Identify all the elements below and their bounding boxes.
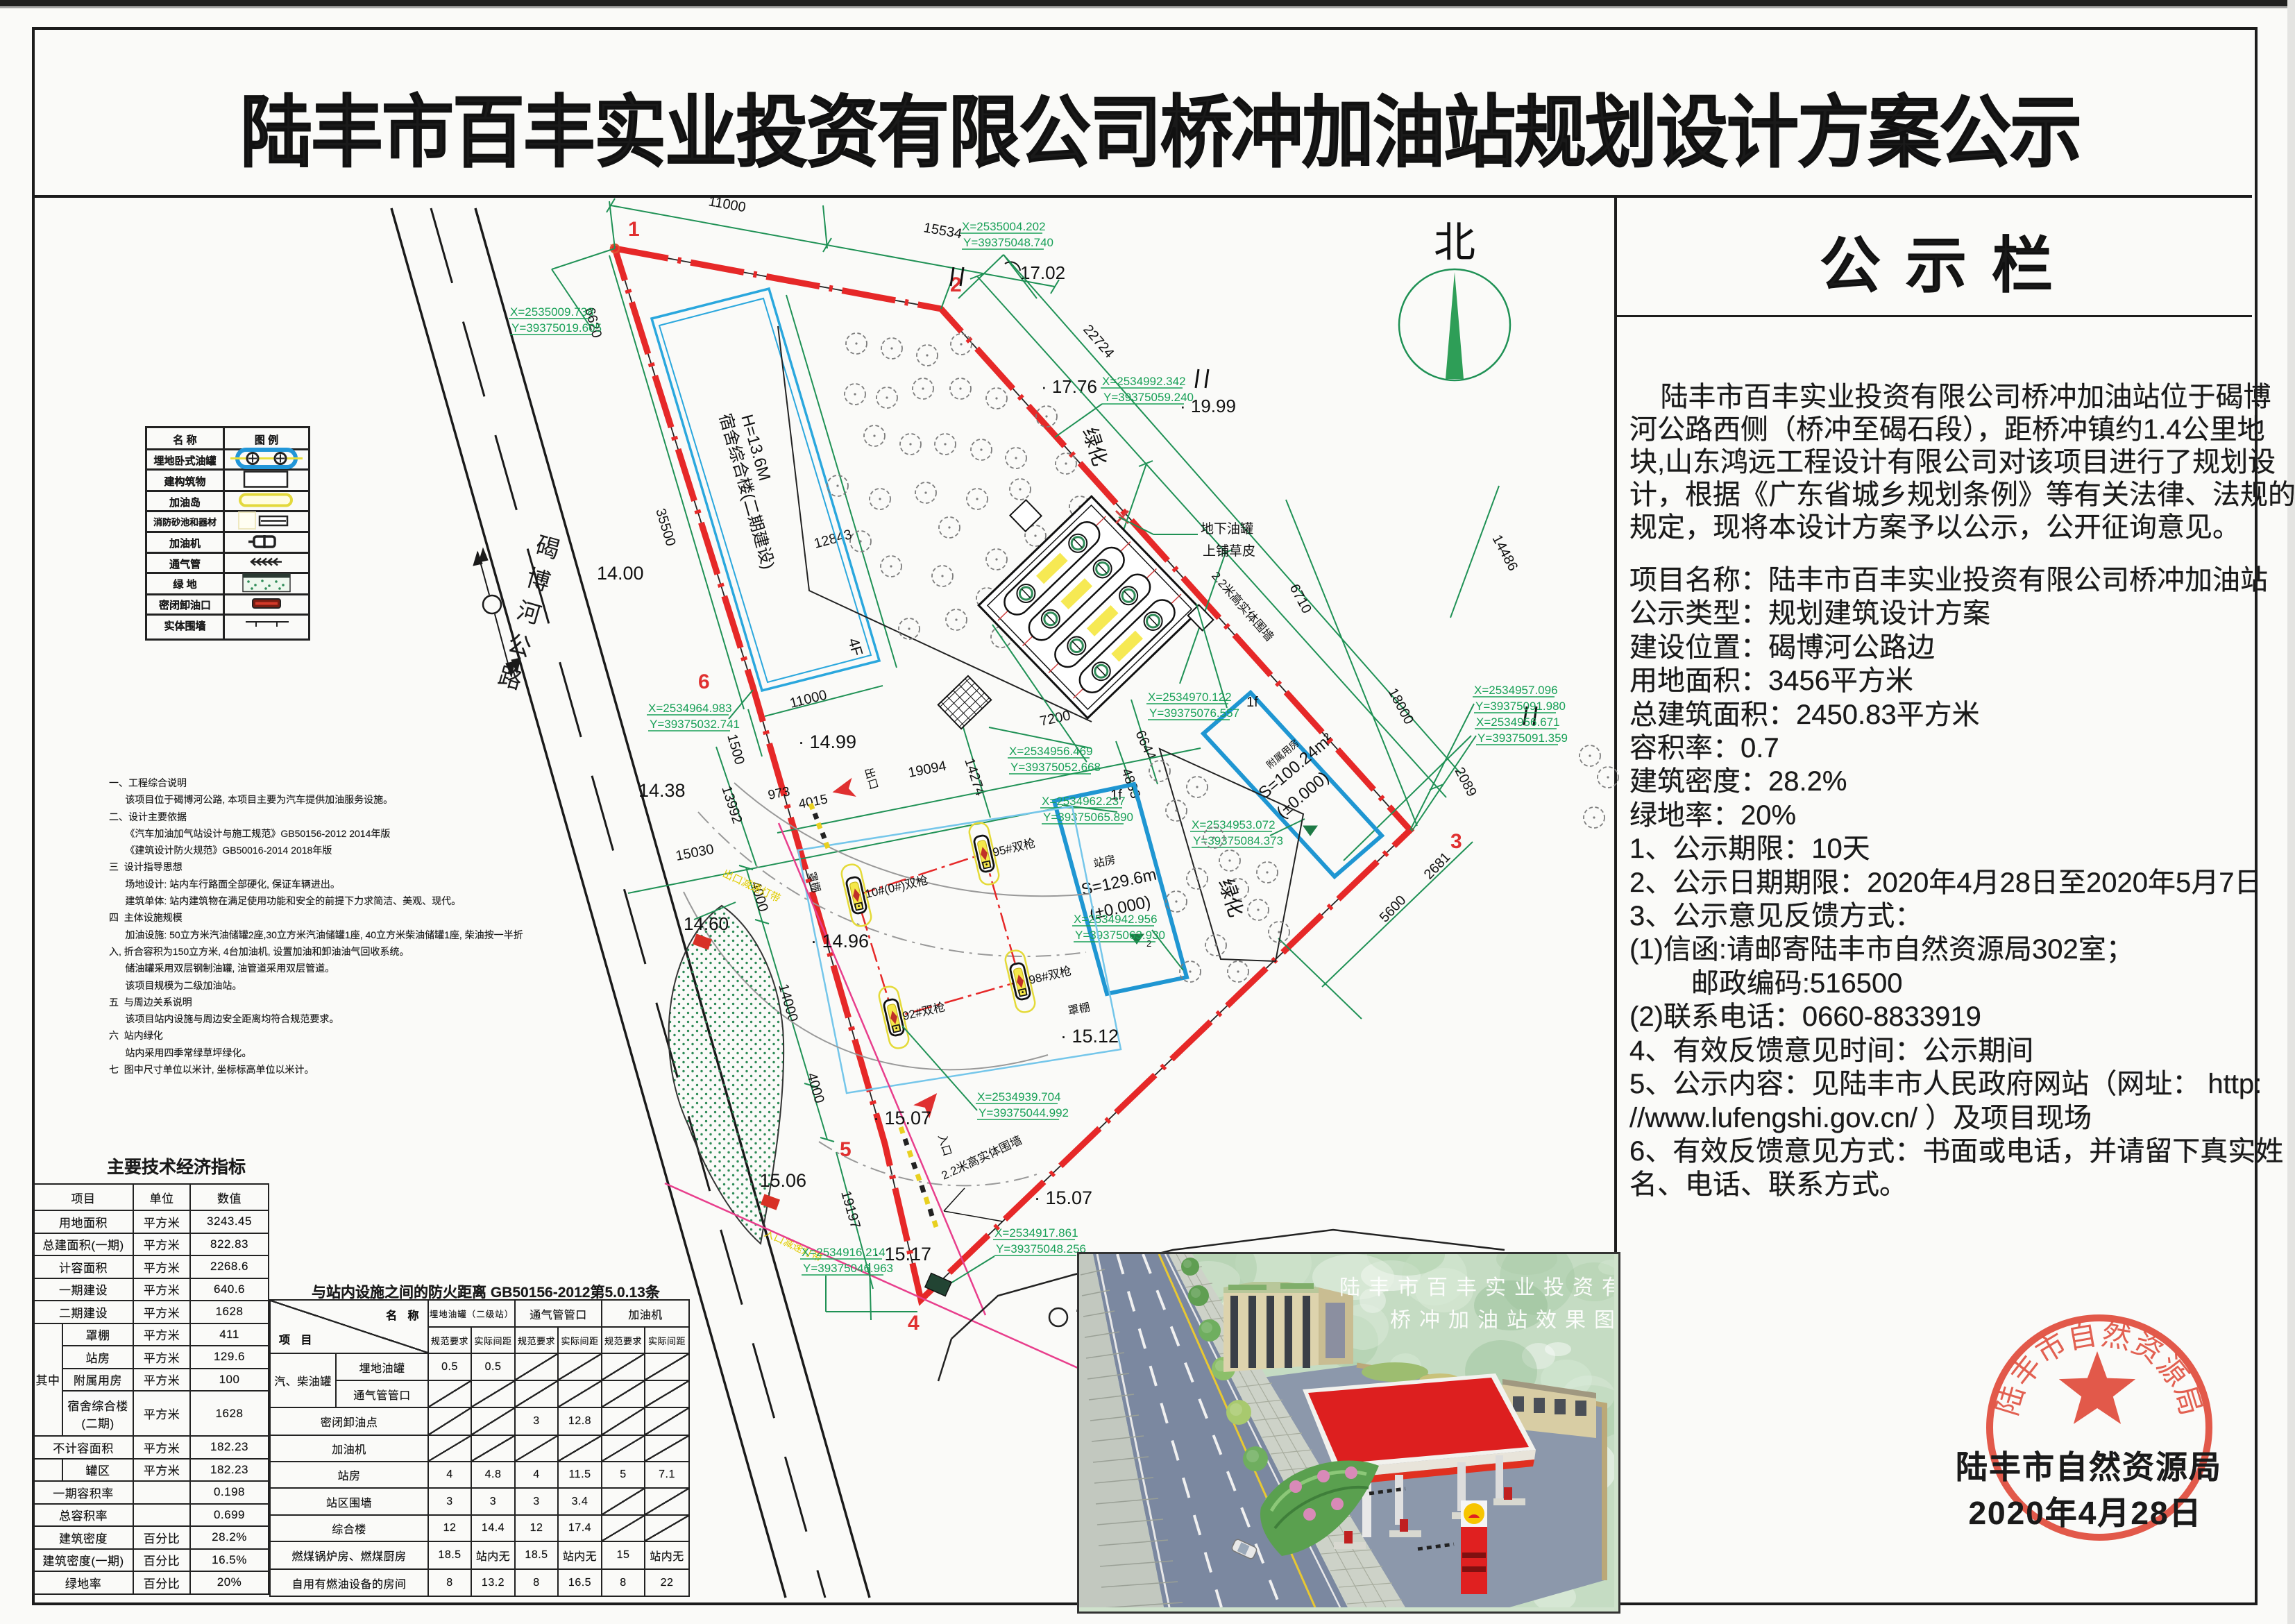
- svg-text:X=2534942.956: X=2534942.956: [1074, 913, 1158, 926]
- svg-text:然: 然: [2099, 1318, 2134, 1355]
- svg-text:5600: 5600: [1377, 893, 1409, 925]
- svg-text:Y=39375091.359: Y=39375091.359: [1477, 731, 1568, 745]
- svg-text:95#双枪: 95#双枪: [992, 836, 1037, 859]
- svg-text:6: 6: [698, 670, 710, 693]
- svg-text:· 15.07: · 15.07: [1034, 1187, 1092, 1208]
- svg-text:14486: 14486: [1489, 532, 1521, 573]
- svg-text:14.60: 14.60: [684, 913, 729, 934]
- svg-text:15030: 15030: [675, 842, 715, 864]
- svg-text:X=2534939.704: X=2534939.704: [977, 1090, 1061, 1103]
- svg-text:X=2534916.214: X=2534916.214: [802, 1246, 886, 1259]
- svg-text:X=2534970.122: X=2534970.122: [1148, 691, 1232, 704]
- svg-text:上铺草皮: 上铺草皮: [1203, 543, 1255, 559]
- svg-text:X=2534953.072: X=2534953.072: [1192, 818, 1276, 831]
- svg-text:13992: 13992: [718, 784, 745, 826]
- svg-text:入口: 入口: [935, 1133, 953, 1157]
- svg-text:7200: 7200: [1038, 708, 1072, 729]
- svg-text:Y=39375065.890: Y=39375065.890: [1043, 811, 1133, 824]
- svg-text:绿化: 绿化: [1214, 876, 1247, 920]
- svg-text:Y=39375048.740: Y=39375048.740: [963, 236, 1053, 249]
- svg-text:11000: 11000: [707, 194, 747, 215]
- svg-text:973: 973: [767, 784, 791, 803]
- svg-text:碣: 碣: [532, 532, 562, 564]
- svg-text:Y=39375091.980: Y=39375091.980: [1475, 700, 1566, 713]
- svg-text:4F: 4F: [845, 636, 866, 658]
- svg-text:绿化: 绿化: [1078, 425, 1111, 468]
- svg-text:公: 公: [505, 630, 534, 662]
- svg-text:X=2534917.861: X=2534917.861: [994, 1226, 1078, 1240]
- svg-text:2.2米高实体围墙: 2.2米高实体围墙: [940, 1133, 1024, 1182]
- svg-text:博: 博: [523, 565, 553, 597]
- svg-text:X=2535004.202: X=2535004.202: [962, 220, 1046, 233]
- svg-text:19197: 19197: [838, 1189, 863, 1230]
- svg-text:罩棚: 罩棚: [1067, 1001, 1091, 1017]
- svg-text:出口减速灯带: 出口减速灯带: [720, 868, 782, 904]
- svg-text:19094: 19094: [907, 759, 948, 781]
- svg-text:2089: 2089: [1452, 765, 1480, 800]
- svg-text:Y=39375019.605: Y=39375019.605: [511, 321, 602, 335]
- svg-text:1: 1: [628, 218, 640, 241]
- svg-text:92#双枪: 92#双枪: [901, 1000, 947, 1023]
- svg-text:3: 3: [1450, 830, 1462, 853]
- svg-text:14.00: 14.00: [597, 563, 644, 584]
- svg-text:Y=39375052.668: Y=39375052.668: [1010, 761, 1101, 774]
- svg-text:1500: 1500: [724, 732, 747, 766]
- svg-text:· 15.06: · 15.06: [748, 1170, 806, 1191]
- svg-text:2.2米高实体围墙: 2.2米高实体围墙: [1209, 569, 1276, 643]
- svg-text:10#(0#)双枪: 10#(0#)双枪: [864, 874, 930, 901]
- svg-text:· 15.07: · 15.07: [873, 1108, 931, 1128]
- svg-text:河: 河: [514, 598, 543, 629]
- svg-text:14.38: 14.38: [638, 780, 686, 801]
- svg-text:15534: 15534: [922, 220, 963, 242]
- svg-text:2681: 2681: [1421, 849, 1454, 882]
- svg-text:· 19.99: · 19.99: [1180, 396, 1236, 416]
- svg-text:站房: 站房: [1092, 854, 1117, 870]
- svg-text:桥冲加油站效果图: 桥冲加油站效果图: [1390, 1309, 1614, 1332]
- svg-text:18000: 18000: [1385, 686, 1417, 727]
- svg-text:· 14.99: · 14.99: [798, 731, 856, 752]
- svg-text:X=2534956.671: X=2534956.671: [1476, 716, 1560, 729]
- svg-text:陆丰市百丰实业投资有限公司: 陆丰市百丰实业投资有限公司: [1339, 1276, 1614, 1299]
- svg-text:Y=39375046.963: Y=39375046.963: [803, 1262, 893, 1275]
- svg-text:4: 4: [908, 1312, 920, 1335]
- svg-text:· 14.96: · 14.96: [811, 931, 869, 951]
- svg-text:Y=39375032.741: Y=39375032.741: [650, 718, 740, 731]
- svg-text:6710: 6710: [1287, 582, 1314, 616]
- svg-text:98#双枪: 98#双枪: [1028, 964, 1073, 987]
- svg-text:出口: 出口: [862, 766, 880, 791]
- svg-text:17.02: 17.02: [1020, 262, 1065, 283]
- svg-text:Y=39375084.373: Y=39375084.373: [1193, 834, 1283, 847]
- svg-text:自: 自: [2065, 1318, 2100, 1355]
- svg-text:X=2534992.342: X=2534992.342: [1102, 375, 1186, 388]
- svg-text:22724: 22724: [1080, 322, 1117, 361]
- svg-text:X=2535009.738: X=2535009.738: [510, 305, 594, 319]
- svg-text:Y=39375044.992: Y=39375044.992: [979, 1106, 1069, 1119]
- svg-text:X=2534964.983: X=2534964.983: [648, 702, 732, 715]
- svg-text:1f: 1f: [1246, 695, 1258, 710]
- svg-text:· 15.12: · 15.12: [1060, 1026, 1119, 1047]
- svg-text:Y=39375048.256: Y=39375048.256: [996, 1242, 1086, 1255]
- svg-text:35500: 35500: [652, 507, 678, 548]
- svg-text:4000: 4000: [804, 1071, 827, 1105]
- svg-text:地下油罐: 地下油罐: [1201, 521, 1253, 536]
- svg-text:北: 北: [1434, 219, 1475, 266]
- svg-text:X=2534962.237: X=2534962.237: [1042, 795, 1126, 808]
- svg-text:X=2534957.096: X=2534957.096: [1474, 684, 1558, 697]
- svg-text:Y=39375076.557: Y=39375076.557: [1149, 707, 1239, 720]
- svg-text:11000: 11000: [788, 687, 829, 711]
